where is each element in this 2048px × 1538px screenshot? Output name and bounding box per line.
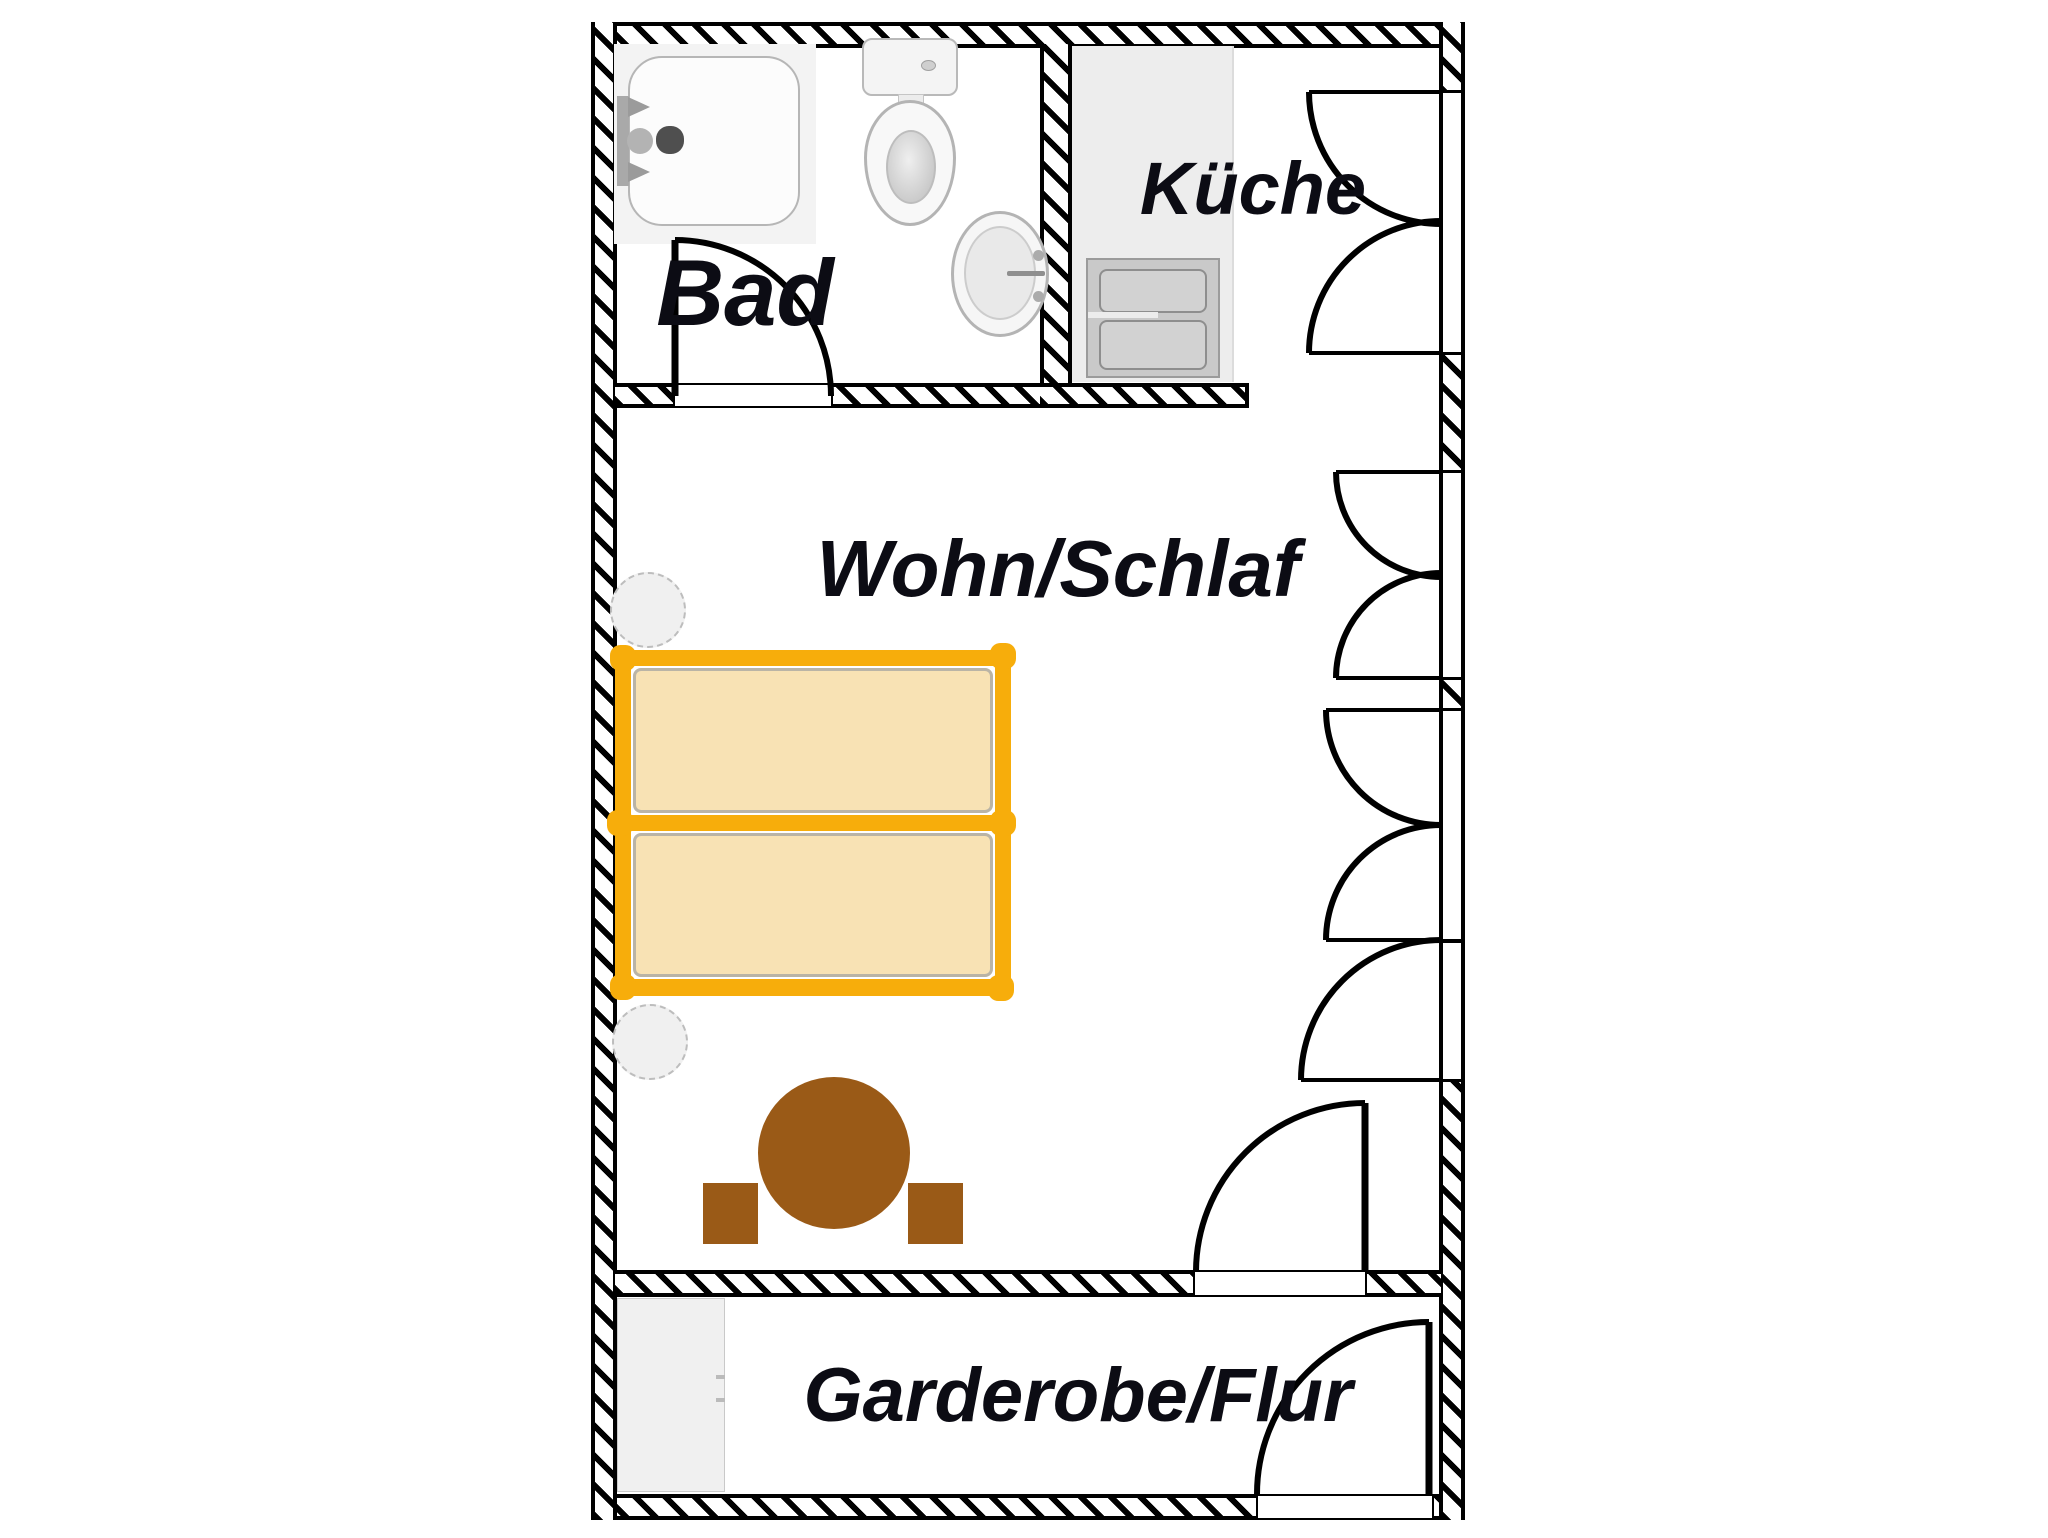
room-label-wohn-schlaf: Wohn/Schlaf	[817, 529, 1300, 609]
shower-jet-icon-bottom	[628, 162, 650, 182]
room-label-kueche: Küche	[1140, 152, 1366, 226]
toilet-tank	[862, 38, 958, 96]
bed-knob	[990, 643, 1016, 669]
shower-tray	[628, 56, 800, 226]
window-2-swing	[1336, 472, 1441, 678]
bed-knob	[607, 810, 633, 836]
window-1	[1439, 90, 1465, 355]
bed-frame-bottom-bar	[615, 979, 1011, 996]
window-2	[1439, 470, 1465, 680]
window-3-swing	[1326, 710, 1441, 940]
stove-handle	[1088, 312, 1158, 318]
room-label-garderobe-flur: Garderobe/Flur	[804, 1358, 1353, 1434]
wall-kueche-bottom	[1040, 383, 1249, 408]
sink-tap-dot-bottom	[1033, 291, 1044, 302]
wall-bad-kueche	[1040, 44, 1072, 407]
bed-frame-top-bar	[615, 650, 1011, 666]
wardrobe-handle	[716, 1398, 725, 1402]
bed-knob	[988, 975, 1014, 1001]
bed-mattress-upper	[633, 668, 993, 813]
bad-door-opening	[673, 383, 833, 408]
sink-tap-dot-top	[1033, 250, 1044, 261]
bedside-stool-upper	[610, 572, 686, 648]
wardrobe	[617, 1298, 725, 1492]
shower-jet-icon-top	[628, 97, 650, 117]
wohn-garderobe-door	[1196, 1103, 1365, 1272]
room-label-bad: Bad	[656, 246, 834, 340]
stove-burner-top	[1099, 269, 1207, 313]
round-table	[758, 1077, 910, 1229]
shower-valve-icon	[627, 128, 653, 154]
shower-drain-icon	[656, 126, 684, 154]
sink-faucet	[1007, 271, 1045, 276]
bedside-stool-lower	[612, 1004, 688, 1080]
stool-right	[908, 1183, 963, 1244]
wall-left	[591, 22, 617, 1520]
bed-mattress-lower	[633, 833, 993, 977]
wardrobe-handle	[716, 1375, 725, 1379]
bed-frame-middle-bar	[615, 815, 1011, 831]
window-4	[1439, 940, 1465, 1082]
window-4-swing	[1301, 940, 1441, 1080]
bed-knob	[990, 810, 1016, 836]
floor-plan: Bad Küche Wohn/Schlaf Garderobe/Flur	[0, 0, 2048, 1538]
bed-knob	[610, 645, 636, 671]
entry-door-opening	[1256, 1494, 1434, 1520]
window-3	[1439, 708, 1465, 942]
toilet-flush-button	[921, 60, 936, 71]
stove-burner-bottom	[1099, 320, 1207, 370]
stool-left	[703, 1183, 758, 1244]
toilet-bowl-inner	[886, 130, 936, 204]
bed-knob	[610, 974, 636, 1000]
wohn-garderobe-door-opening	[1193, 1270, 1367, 1297]
